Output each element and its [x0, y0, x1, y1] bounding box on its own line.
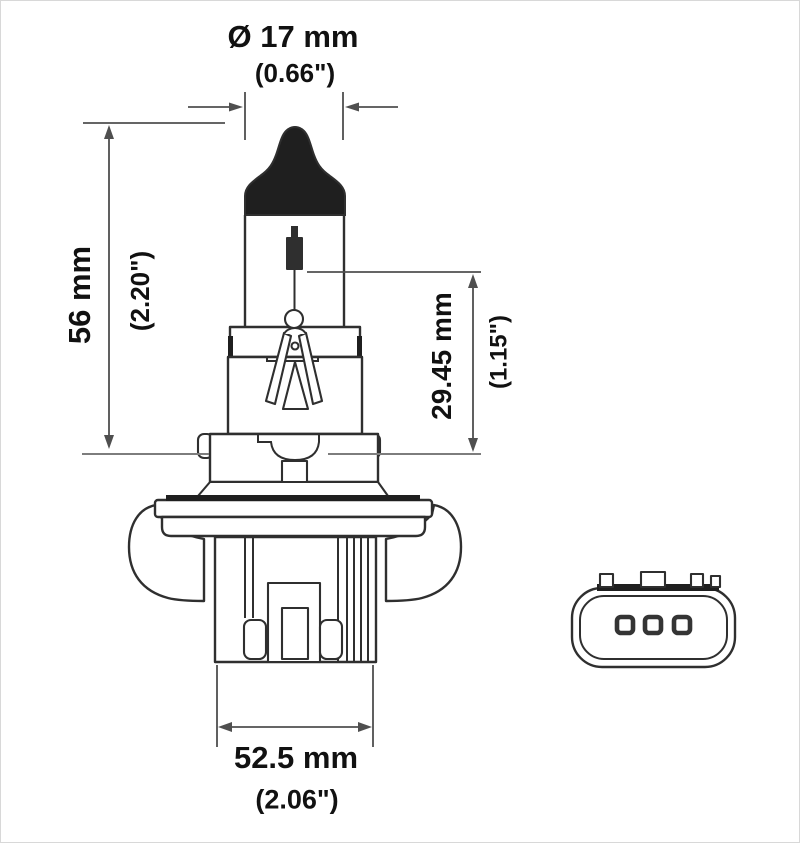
connector-terminals — [617, 617, 690, 633]
base-plate-lower — [162, 517, 425, 536]
label-overall-length-imperial: (2.20") — [125, 251, 155, 331]
latch-tab-right — [320, 620, 342, 659]
dimension-base-width — [217, 665, 373, 747]
bulb-side-view — [129, 127, 461, 662]
base-transition — [198, 482, 388, 496]
terminal-housing-inner — [282, 608, 308, 659]
base-plate-dark-band — [166, 495, 420, 501]
support-bead — [285, 310, 303, 328]
label-filament-height-metric: 29.45 mm — [426, 292, 457, 420]
label-overall-length-metric: 56 mm — [62, 246, 97, 344]
page-border — [1, 1, 800, 843]
filament — [286, 226, 303, 311]
diagram-page: Ø 17 mm (0.66") 56 mm (2.20") 29.45 mm (… — [0, 0, 800, 843]
label-diameter-metric: Ø 17 mm — [228, 19, 359, 54]
base-plate-upper — [155, 500, 432, 517]
base-edge-left — [228, 336, 233, 357]
bulb-dimension-diagram: Ø 17 mm (0.66") 56 mm (2.20") 29.45 mm (… — [0, 0, 800, 843]
base-edge-right — [357, 336, 362, 357]
latch-tab-left — [244, 620, 266, 659]
terminal-3 — [674, 617, 690, 633]
terminal-1 — [617, 617, 633, 633]
terminal-2 — [645, 617, 661, 633]
connector-end-view — [572, 572, 735, 667]
label-base-width-imperial: (2.06") — [255, 784, 338, 814]
bulb-black-tip — [245, 127, 345, 215]
flange-index-tab — [282, 461, 307, 482]
label-diameter-imperial: (0.66") — [255, 58, 335, 88]
label-base-width-metric: 52.5 mm — [234, 740, 358, 775]
label-filament-height-imperial: (1.15") — [485, 315, 512, 389]
